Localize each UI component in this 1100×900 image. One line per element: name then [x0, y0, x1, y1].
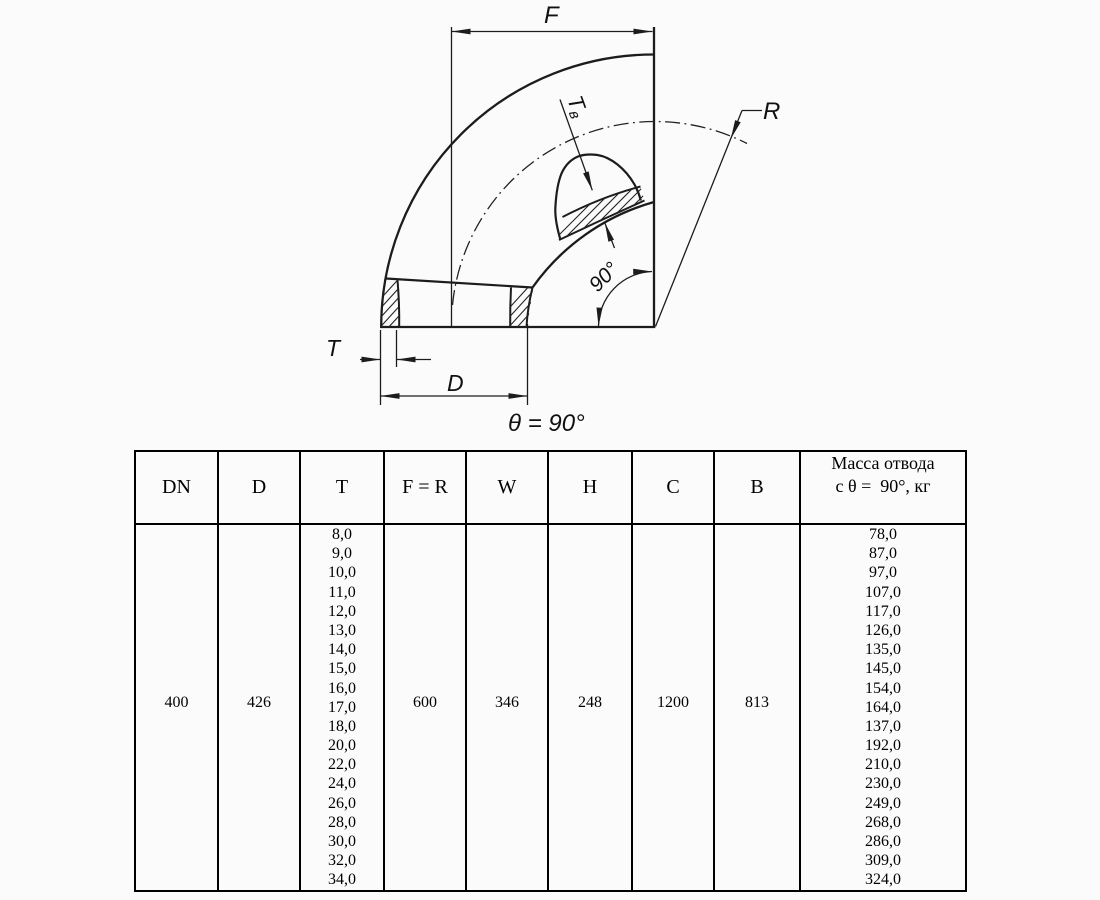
svg-text:F: F	[544, 2, 560, 29]
svg-text:Tв: Tв	[560, 92, 593, 121]
svg-text:R: R	[763, 98, 780, 125]
svg-text:θ = 90°: θ = 90°	[508, 410, 585, 437]
svg-text:90°: 90°	[585, 258, 624, 297]
svg-text:T: T	[326, 335, 342, 361]
svg-text:D: D	[447, 370, 464, 396]
